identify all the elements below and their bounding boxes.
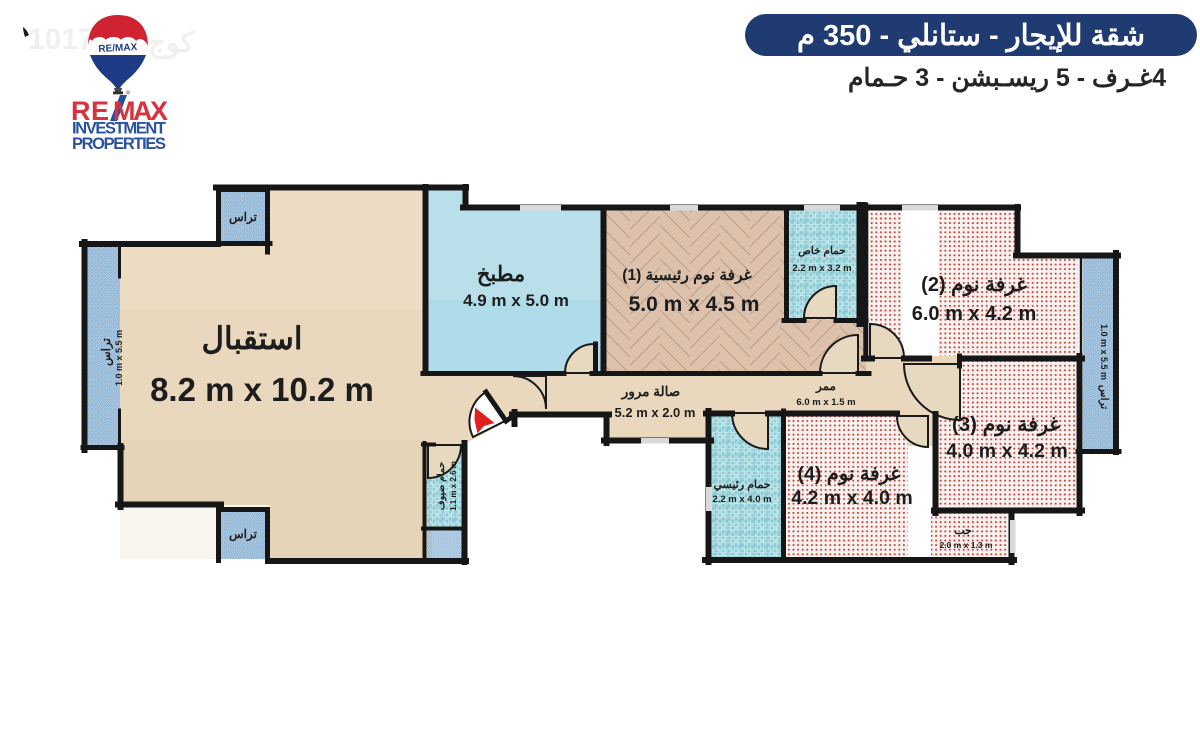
svg-text:غرفة نوم رئيسية (1): غرفة نوم رئيسية (1) [622, 267, 752, 285]
svg-text:مطبخ: مطبخ [477, 263, 525, 287]
svg-text:6.0 m x 4.2 m: 6.0 m x 4.2 m [912, 303, 1037, 325]
svg-text:جب: جب [954, 525, 972, 537]
svg-text:غرفة نوم (2): غرفة نوم (2) [921, 274, 1027, 297]
svg-text:1.0 m x 5.5 m: 1.0 m x 5.5 m [1099, 324, 1109, 380]
svg-text:كوج: كوج [148, 27, 195, 60]
svg-text:صالة مرور: صالة مرور [621, 384, 681, 400]
svg-text:ممر: ممر [815, 379, 836, 394]
svg-text:غرفة نوم (3): غرفة نوم (3) [952, 413, 1061, 437]
svg-text:4.0 m x 4.2 m: 4.0 m x 4.2 m [946, 440, 1067, 462]
svg-text:تراس: تراس [99, 337, 114, 366]
svg-text:PROPERTIES: PROPERTIES [72, 135, 166, 153]
svg-text:6.0 m x 1.5 m: 6.0 m x 1.5 m [796, 397, 855, 408]
svg-text:2.2 m x 4.0 m: 2.2 m x 4.0 m [712, 494, 771, 505]
svg-text:حمام ضيوف: حمام ضيوف [436, 462, 447, 511]
svg-text:4.2 m x 4.0 m: 4.2 m x 4.0 m [791, 487, 912, 509]
svg-text:2.2 m x 3.2 m: 2.2 m x 3.2 m [792, 263, 851, 274]
svg-text:حمام رئيسي: حمام رئيسي [713, 479, 770, 492]
svg-text:8.2 m x 10.2 m: 8.2 m x 10.2 m [150, 371, 374, 408]
svg-text:2.0 m x 1.3 m: 2.0 m x 1.3 m [940, 540, 993, 550]
svg-text:‏4غـرف - 5 ريسـبشن - 3 حـمام: ‏4غـرف - 5 ريسـبشن - 3 حـمام [848, 64, 1166, 93]
svg-text:تراس: تراس [229, 527, 258, 542]
svg-text:5.0 m x 4.5 m: 5.0 m x 4.5 m [629, 293, 760, 316]
svg-text:تراس: تراس [1098, 385, 1110, 410]
svg-text:‏شقة للإيجار - ستانلي - 350 م: ‏شقة للإيجار - ستانلي - 350 م [797, 20, 1145, 53]
svg-text:1.1 m x 2.6 m: 1.1 m x 2.6 m [449, 461, 458, 511]
svg-text:4.9 m x 5.0 m: 4.9 m x 5.0 m [463, 291, 569, 310]
svg-text:RE/MAX: RE/MAX [98, 42, 138, 55]
svg-text:1.0 m x 5.5 m: 1.0 m x 5.5 m [114, 330, 124, 386]
svg-text:استقبال: استقبال [202, 321, 303, 356]
svg-text:5.2 m x 2.0 m: 5.2 m x 2.0 m [615, 405, 696, 420]
svg-text:تراس: تراس [229, 210, 258, 225]
svg-text:حمام خاص: حمام خاص [798, 245, 846, 257]
svg-text:غرفة نوم (4): غرفة نوم (4) [798, 463, 902, 486]
